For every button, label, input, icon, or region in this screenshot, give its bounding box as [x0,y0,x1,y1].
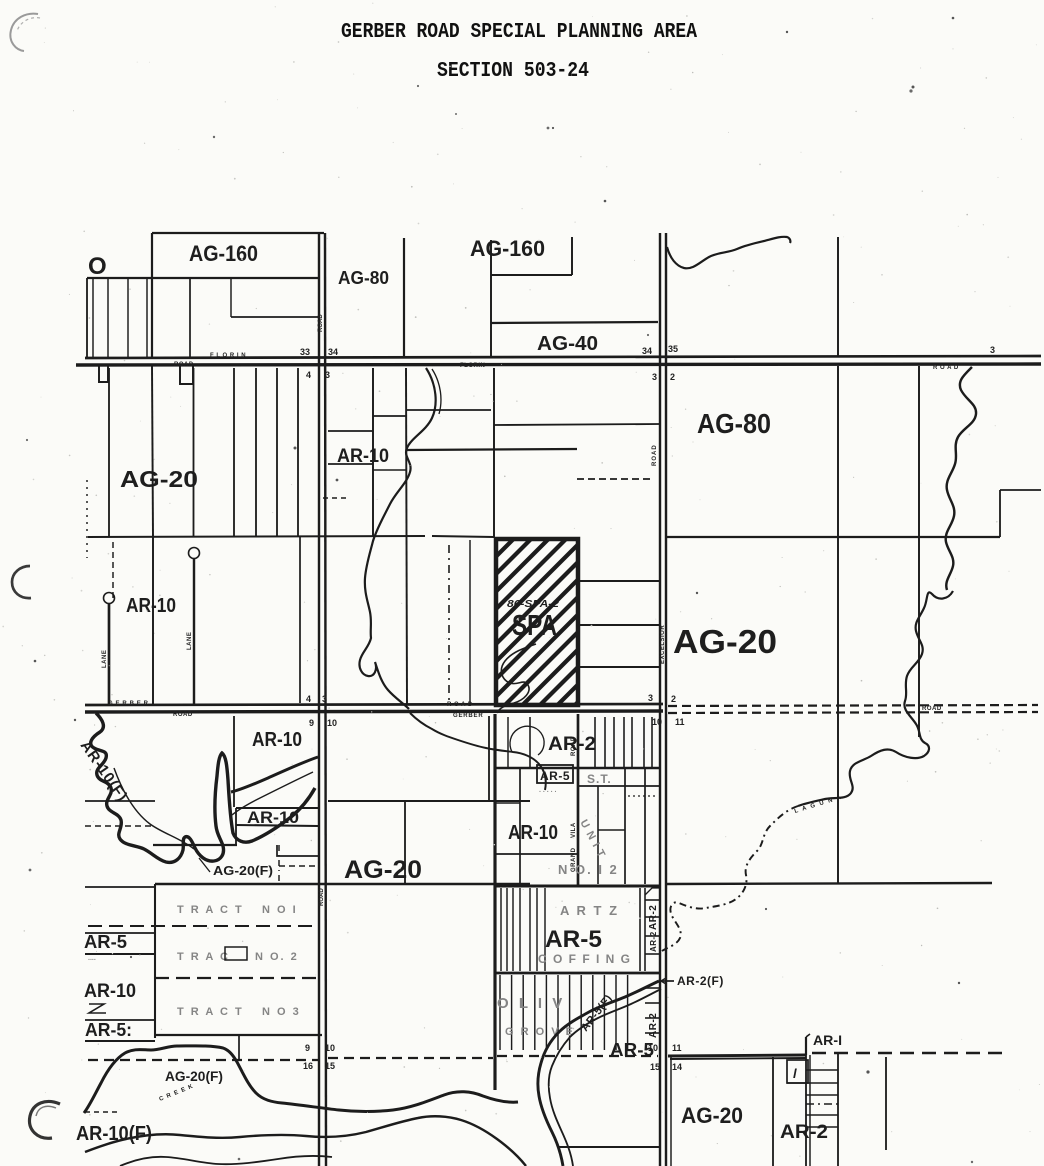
svg-text:AR-10: AR-10 [252,729,302,751]
svg-text:....: .... [88,955,96,962]
svg-text:AR-10: AR-10 [337,446,389,467]
svg-text:F L O R I N: F L O R I N [210,353,246,359]
svg-text:3: 3 [322,694,327,704]
svg-text:AR-2: AR-2 [780,1122,828,1143]
svg-text:N O. I 2: N O. I 2 [558,862,619,877]
svg-text:R O A D: R O A D [447,702,473,708]
svg-text:34: 34 [328,347,338,357]
svg-text:LANE: LANE [187,632,193,650]
svg-text:AG-40: AG-40 [537,333,598,355]
svg-text:AG-160: AG-160 [189,241,258,266]
svg-text:86-SPA-2: 86-SPA-2 [507,598,559,610]
svg-text:ROAD: ROAD [652,444,658,466]
svg-text:10: 10 [327,718,337,728]
svg-text:SPA: SPA [512,610,557,642]
svg-text:11: 11 [675,717,685,727]
svg-text:AR-10: AR-10 [126,595,176,617]
svg-text:ROAD: ROAD [173,712,193,718]
svg-text:C R E E K: C R E E K [159,1084,195,1103]
svg-text:AG-160: AG-160 [470,236,545,261]
svg-text:AR-I: AR-I [813,1032,842,1048]
svg-text:SECTION 503-24: SECTION 503-24 [437,60,589,83]
svg-text:GERBER ROAD SPECIAL PLANNING A: GERBER ROAD SPECIAL PLANNING AREA [341,21,697,44]
svg-text:AR-2: AR-2 [548,734,596,755]
svg-text:T R A C T: T R A C T [177,1006,244,1018]
svg-text:AR-2(F): AR-2(F) [677,974,724,988]
svg-text:ROAD: ROAD [922,706,942,712]
svg-text:34: 34 [642,346,652,356]
svg-text:A R T Z: A R T Z [560,903,619,918]
svg-text:VILA: VILA [571,822,577,838]
svg-text:AG-20(F): AG-20(F) [213,863,273,878]
svg-text:AG-80: AG-80 [697,408,771,439]
svg-text:AR-10: AR-10 [508,822,558,844]
svg-text:ROAD: ROAD [318,314,324,332]
svg-text:O: O [88,253,107,280]
svg-text:GERBER: GERBER [453,713,483,719]
svg-text:G E R B E R: G E R B E R [108,701,149,707]
svg-text:AR-2: AR-2 [648,1013,659,1038]
svg-text:4: 4 [306,370,311,380]
svg-text:15: 15 [325,1061,335,1071]
svg-text:AR-10: AR-10 [84,981,136,1002]
svg-text:N O I: N O I [262,904,298,916]
svg-text:O L I V: O L I V [497,995,565,1012]
svg-text:AR-5: AR-5 [84,932,127,952]
svg-text:15: 15 [650,1062,660,1072]
svg-text:10: 10 [325,1043,335,1053]
svg-text:3: 3 [325,370,330,380]
svg-text:35: 35 [668,344,678,354]
svg-text:16: 16 [303,1061,313,1071]
svg-text:LANE: LANE [102,650,108,668]
svg-text:AG-20: AG-20 [120,466,198,492]
svg-text:AR-5: AR-5 [610,1040,654,1060]
svg-text:3: 3 [990,345,995,355]
svg-text:AG-20: AG-20 [673,623,777,660]
svg-text:AR-10(F): AR-10(F) [77,738,131,806]
svg-text:33: 33 [300,347,310,357]
svg-text:R O A D: R O A D [933,365,959,371]
svg-text:AR-5:: AR-5: [85,1020,132,1040]
svg-text:AG-80: AG-80 [338,268,389,288]
svg-text:T R A C: T R A C [177,951,230,963]
svg-text:T R A C T: T R A C T [177,904,244,916]
svg-text:S.T.: S.T. [587,772,612,786]
svg-text:U N I T: U N I T [577,818,607,861]
svg-text:FLORIN: FLORIN [460,363,485,369]
svg-text:AR-2: AR-2 [648,905,659,930]
svg-text:N O. 2: N O. 2 [255,951,299,963]
svg-text:AR-5: AR-5 [545,926,602,953]
svg-text:EXCELSIOR: EXCELSIOR [660,625,666,664]
svg-text:AG-20(F): AG-20(F) [165,1068,223,1084]
svg-text:2: 2 [671,694,676,704]
svg-text:10: 10 [652,717,662,727]
svg-text:2: 2 [670,372,675,382]
svg-text:AR-10(F): AR-10(F) [76,1123,152,1145]
svg-text:11: 11 [672,1043,682,1053]
svg-text:AG-20: AG-20 [344,856,422,884]
svg-text:9: 9 [309,718,314,728]
svg-text:14: 14 [672,1062,682,1072]
svg-text:C O F F I N G: C O F F I N G [538,952,632,966]
svg-text:9: 9 [305,1043,310,1053]
svg-text:AR-5: AR-5 [540,769,570,783]
svg-text:AR-10: AR-10 [247,808,299,827]
svg-text:ROAD: ROAD [174,362,194,368]
svg-text:N O 3: N O 3 [262,1006,301,1018]
svg-text:3: 3 [652,372,657,382]
svg-text:. . . . .: . . . . . [539,787,557,794]
svg-text:AG-20: AG-20 [681,1103,743,1128]
svg-text:4: 4 [306,694,311,704]
svg-text:ROAD: ROAD [319,888,325,906]
svg-text:3: 3 [648,693,653,703]
svg-text:l: l [793,1066,797,1081]
svg-text:AR-2: AR-2 [649,931,658,952]
